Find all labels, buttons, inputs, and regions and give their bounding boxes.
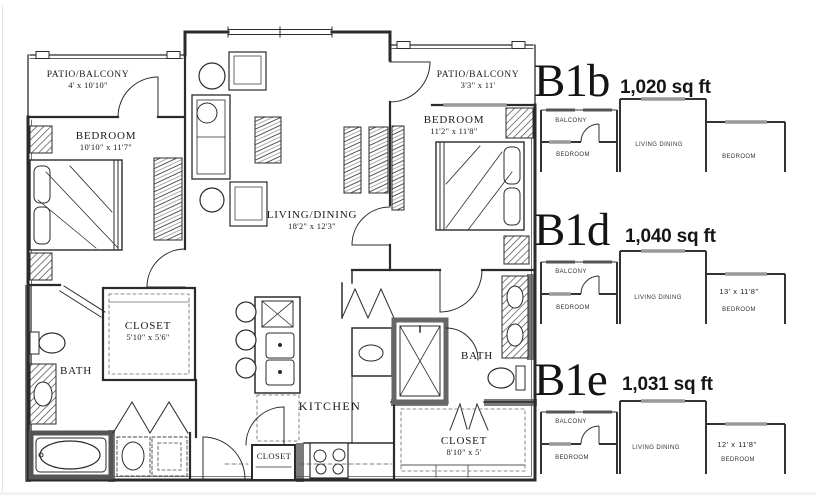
room-label-kitchen: KITCHEN — [299, 400, 361, 414]
variant-area-b1d: 1,040 sq ft — [625, 227, 716, 246]
room-dims: 3'3" x 11' — [437, 81, 519, 91]
hall-closet — [246, 407, 295, 480]
room-name: CLOSET — [125, 320, 171, 333]
room-name: BATH — [461, 350, 493, 363]
room-name: CLOSET — [441, 435, 487, 448]
room-label-bath-right: BATH — [461, 350, 493, 363]
floorplan-page: PATIO/BALCONY 4' x 10'10" BEDROOM 10'10"… — [0, 0, 816, 500]
room-dims: 5'10" x 5'6" — [125, 333, 171, 343]
room-label-closet-hall: CLOSET — [257, 452, 292, 462]
room-name: CLOSET — [257, 452, 292, 462]
variant-code-b1b: B1b — [534, 58, 609, 105]
variant-area-b1e: 1,031 sq ft — [622, 375, 713, 394]
mini-room-dims-bedroom-right: 12' x 11'8" — [717, 441, 756, 449]
variant-area-b1b: 1,020 sq ft — [620, 78, 711, 97]
mini-room-label-bedroom-right: BEDROOM — [722, 307, 756, 313]
mini-room-label-bedroom-left: BEDROOM — [556, 305, 590, 311]
mini-room-label-living: LIVING DINING — [635, 142, 683, 148]
room-dims: 8'10" x 5' — [441, 448, 487, 458]
kitchen-fixtures — [225, 283, 394, 478]
room-dims: 4' x 10'10" — [47, 81, 129, 91]
room-label-bedroom-left: BEDROOM 10'10" x 11'7" — [76, 130, 137, 152]
room-name: BEDROOM — [76, 130, 137, 143]
room-name: BATH — [60, 365, 92, 378]
living-furniture — [192, 52, 388, 226]
mini-room-label-balcony: BALCONY — [555, 118, 586, 124]
room-label-patio-left: PATIO/BALCONY 4' x 10'10" — [47, 70, 129, 91]
room-label-closet-left: CLOSET 5'10" x 5'6" — [125, 320, 171, 342]
bath-left-fixtures — [30, 332, 111, 477]
mini-room-label-balcony: BALCONY — [555, 419, 586, 425]
room-name: KITCHEN — [299, 400, 361, 414]
room-label-living-dining: LIVING/DINING 18'2" x 12'3" — [267, 209, 357, 231]
room-name: LIVING/DINING — [267, 209, 357, 222]
room-dims: 11'2" x 11'8" — [424, 127, 485, 137]
mini-room-label-living: LIVING DINING — [632, 445, 680, 451]
room-dims: 18'2" x 12'3" — [267, 222, 357, 232]
room-label-bedroom-right: BEDROOM 11'2" x 11'8" — [424, 114, 485, 136]
room-label-patio-right: PATIO/BALCONY 3'3" x 11' — [437, 70, 519, 91]
room-dims: 10'10" x 11'7" — [76, 143, 137, 153]
main-floorplan — [25, 27, 537, 482]
mini-floorplan-b1b — [541, 99, 785, 172]
mini-room-label-bedroom-right: BEDROOM — [722, 154, 756, 160]
laundry-closet — [113, 402, 188, 476]
room-name: BEDROOM — [424, 114, 485, 127]
room-label-bath-left: BATH — [60, 365, 92, 378]
mini-room-label-bedroom-left: BEDROOM — [555, 455, 589, 461]
variant-code-b1d: B1d — [534, 207, 609, 254]
mini-room-label-living: LIVING DINING — [634, 295, 682, 301]
mini-room-label-bedroom-left: BEDROOM — [556, 152, 590, 158]
mini-room-label-bedroom-right: BEDROOM — [721, 457, 755, 463]
mini-room-dims-bedroom-right: 13' x 11'8" — [719, 288, 758, 296]
room-label-closet-right: CLOSET 8'10" x 5' — [441, 435, 487, 457]
variant-code-b1e: B1e — [534, 357, 607, 404]
mini-room-label-balcony: BALCONY — [555, 269, 586, 275]
mini-floorplan-b1e — [541, 401, 785, 474]
